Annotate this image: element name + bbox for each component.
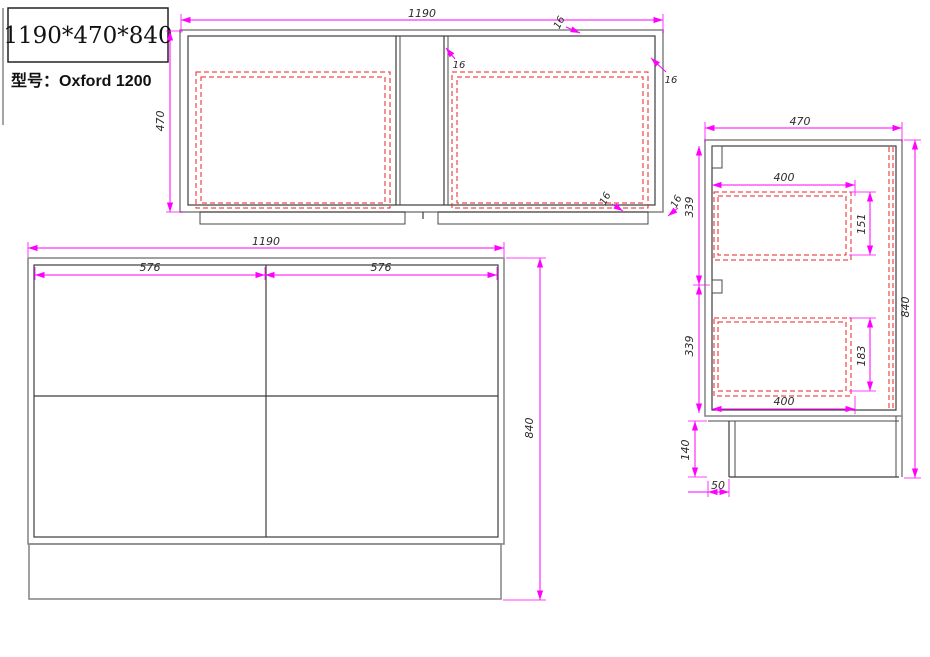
model-label: 型号：Oxford 1200 (11, 72, 152, 90)
front-panel-left-plan (200, 212, 405, 224)
drawer-top-hidden (714, 192, 851, 260)
drawer-bottom-hidden (714, 318, 851, 396)
drawer-box-left-hidden-inner (201, 77, 385, 203)
drawer-box-right-hidden (452, 72, 648, 208)
drawer-top-hidden-inner (718, 196, 846, 255)
dim-upper-section: 339 (683, 197, 696, 218)
drawer-box-left-hidden (196, 72, 390, 208)
dim-drawer-bottom-depth: 400 (774, 395, 795, 408)
dim-plinth-height: 140 (679, 440, 692, 461)
top-view-outline (180, 30, 663, 212)
dim-divider-16: 16 (453, 60, 466, 71)
side-view: 470 840 339 339 400 151 183 400 140 (679, 115, 921, 497)
top-view-inner-outline (188, 36, 655, 205)
dim-front-height: 840 (523, 418, 536, 439)
dim-plinth-recess: 50 (711, 479, 725, 492)
dim-front-width: 1190 (252, 235, 280, 248)
drawer-bottom-hidden-inner (718, 322, 846, 391)
title-block: 1190*470*840 型号：Oxford 1200 (3, 8, 173, 125)
top-view: 1190 470 16 16 16 16 16 (154, 7, 685, 224)
front-view: 1190 576 576 840 (28, 235, 546, 600)
dim-drawer-top-height: 151 (855, 214, 868, 235)
drawer-bracket-top (712, 146, 722, 168)
overall-size-label: 1190*470*840 (3, 23, 172, 49)
dim-right-panel-16: 16 (665, 75, 678, 86)
drawer-box-right-hidden-inner (457, 77, 643, 203)
dim-drawer-top-depth: 400 (774, 171, 795, 184)
side-view-inner-outline (712, 146, 896, 410)
dim-door-right: 576 (371, 261, 392, 274)
leader-line (446, 48, 455, 59)
dim-top-panel-16: 16 (552, 15, 568, 31)
dim-drawer-bottom-height: 183 (855, 346, 868, 367)
dim-side-height: 840 (899, 297, 912, 318)
plinth-front (29, 544, 501, 599)
side-view-outline (705, 140, 902, 416)
front-panel-right-plan (438, 212, 648, 224)
dim-top-depth: 470 (154, 111, 167, 132)
drawer-bracket-bottom (712, 280, 722, 293)
technical-drawing: 1190*470*840 型号：Oxford 1200 1190 470 16 (0, 0, 930, 657)
drawing-sheet: 1190*470*840 型号：Oxford 1200 1190 470 16 (0, 0, 930, 657)
dim-lower-section: 339 (683, 336, 696, 357)
dim-door-left: 576 (140, 261, 161, 274)
dim-side-depth: 470 (790, 115, 811, 128)
dim-top-width: 1190 (408, 7, 436, 20)
